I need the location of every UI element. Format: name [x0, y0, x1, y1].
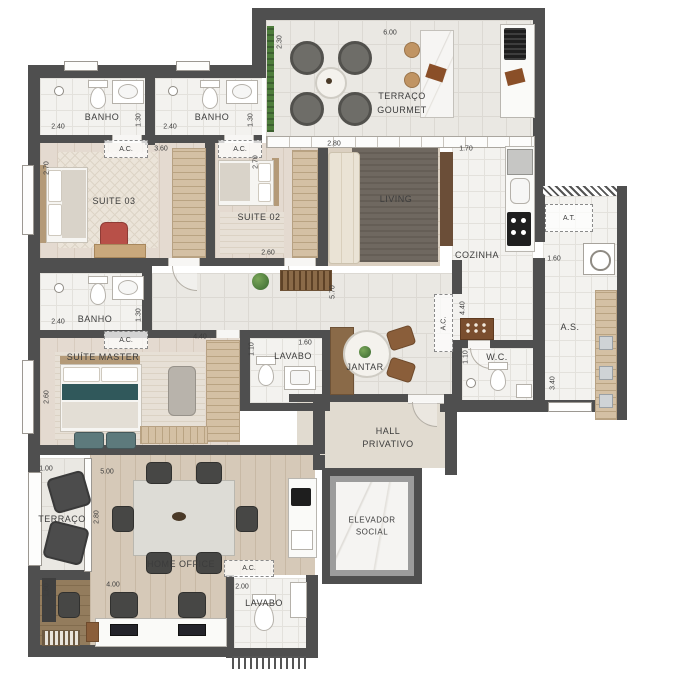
wall-suites-divider	[205, 143, 215, 258]
banho2-sink	[232, 84, 252, 99]
wall-lavabo1-top	[250, 330, 330, 338]
wall-wing-right	[617, 186, 627, 420]
dim-living-w: 2.80	[327, 141, 341, 148]
wc-toilet	[490, 369, 506, 391]
ac-box-shaft: A.C.	[434, 294, 453, 352]
dim-banho1-h: 1.30	[136, 113, 143, 127]
door-gap-suite03	[168, 258, 200, 266]
wc-basin	[516, 384, 532, 398]
island-stool-1	[404, 42, 420, 58]
suite02-label: SUITE 02	[237, 212, 280, 222]
wall-hall-right	[445, 394, 457, 475]
dim-suite03-w: 3.60	[154, 146, 168, 153]
ac-label-suite02: A.C.	[233, 146, 247, 153]
suite03-pillow-2	[48, 204, 62, 236]
cooktop-burner-2	[521, 218, 526, 223]
dim-lavabo1-w: 1.60	[298, 340, 312, 347]
suite-master-window	[22, 360, 34, 434]
master-blanket	[62, 402, 138, 428]
lavabo1-toilet	[258, 364, 274, 386]
home-office-label: HOME OFFICE	[147, 559, 215, 569]
ho-table-centerpiece	[172, 512, 186, 521]
hatch-lavabo2-bottom	[232, 656, 306, 669]
banho2-label: BANHO	[195, 112, 230, 122]
terraco-chair-1	[290, 41, 324, 75]
dim-homeoffice-h: 2.80	[94, 510, 101, 524]
wall-suite02-right	[318, 143, 328, 266]
dim-as-h: 3.40	[550, 376, 557, 390]
cooktop-burner-4	[521, 230, 526, 235]
living-label: LIVING	[380, 194, 413, 204]
banho3-toilet	[90, 283, 106, 305]
wall-lavabo2-right	[306, 575, 318, 648]
as-tub-1	[599, 336, 613, 350]
at-box: A.T.	[545, 204, 593, 232]
dim-as-w: 1.60	[547, 256, 561, 263]
dim-terraco-w: 6.00	[383, 30, 397, 37]
dim-banho1-w: 2.40	[51, 124, 65, 131]
ho-chair-1	[146, 462, 172, 484]
banho2-shower-icon	[168, 86, 178, 96]
master-teal-runner	[62, 384, 138, 400]
banho1-shower-icon	[54, 86, 64, 96]
ac-box-suite03: A.C.	[104, 140, 148, 158]
dim-wc-h: 1.10	[463, 350, 470, 364]
ac-label-master: A.C.	[119, 337, 133, 344]
grill-icon	[504, 28, 526, 60]
wall-banho3-top	[28, 265, 152, 273]
banho2-toilet	[202, 87, 218, 109]
ac-label-suite03: A.C.	[119, 146, 133, 153]
lavabo2-label: LAVABO	[245, 598, 283, 608]
lavabo1-sink	[290, 370, 310, 385]
floor-plan: A.C. A.C. A.C. A.C. A.C. A.T. BANHO BANH…	[0, 0, 677, 674]
ac-box-lavabo2: A.C.	[224, 560, 274, 577]
cooktop-burner-3	[511, 230, 516, 235]
wc-shower-icon	[466, 378, 476, 388]
wall-homeoffice-top	[28, 445, 320, 455]
wc-label: W.C.	[486, 352, 508, 362]
bookshelf-striped	[42, 630, 80, 646]
terraco-gourmet-label-2: GOURMET	[377, 105, 427, 115]
dim-banho3-w: 2.40	[51, 319, 65, 326]
desk-chair-2	[178, 592, 206, 618]
banho2-window	[176, 61, 210, 71]
suite02-blanket	[220, 163, 250, 201]
dim-suite02-h: 2.70	[253, 155, 260, 169]
lavabo2-sink-counter	[290, 582, 307, 618]
fridge-icon	[507, 149, 533, 175]
wall-terraco-bottom	[28, 570, 90, 580]
dim-suite03-h: 2.70	[44, 161, 51, 175]
island-stool-2	[404, 72, 420, 88]
suite03-window	[22, 165, 34, 235]
ac-box-master: A.C.	[104, 331, 148, 349]
ac-label-lavabo2: A.C.	[242, 565, 256, 572]
elevador-label-2: SOCIAL	[356, 528, 388, 537]
master-pillow-1	[63, 367, 100, 382]
door-gap-master	[216, 330, 240, 338]
master-chaise	[168, 366, 196, 416]
ac-label-shaft: A.C.	[440, 316, 447, 330]
terraco-chair-2	[338, 41, 372, 75]
suite02-wardrobe	[292, 150, 318, 258]
wall-kitchen-corridor	[452, 260, 462, 294]
dim-banho3-h: 1.30	[136, 308, 143, 322]
monitor-2	[178, 624, 206, 636]
dim-terraco2-w: 1.00	[39, 466, 53, 473]
suite-master-label: SUÍTE MASTER	[67, 352, 140, 362]
copa-sink	[291, 530, 313, 550]
banho3-sink	[118, 280, 138, 295]
hall-label-1: HALL	[376, 426, 401, 436]
as-tub-3	[599, 394, 613, 408]
monitor-1	[110, 624, 138, 636]
wall-lavabo2-left	[226, 575, 234, 657]
cozinha-label: COZINHA	[455, 250, 499, 260]
ho-chair-2	[196, 462, 222, 484]
wall-lavabo1-right	[322, 330, 330, 403]
wall-wc-left	[452, 340, 462, 402]
terraco-chair-3	[290, 92, 324, 126]
jantar-label: JANTAR	[346, 362, 383, 372]
dim-lavabo2-w: 2.00	[235, 584, 249, 591]
banho1-label: BANHO	[85, 112, 120, 122]
master-wardrobe-side	[206, 340, 240, 442]
dim-lavabo1-h: 1.10	[249, 342, 256, 356]
dim-corridor-h: 5.70	[330, 285, 337, 299]
lavabo1-label: LAVABO	[274, 351, 312, 361]
banho1-window	[64, 61, 98, 71]
as-label: A.S.	[560, 322, 579, 332]
suite03-wardrobe	[172, 148, 206, 258]
master-pillow-2	[101, 367, 138, 382]
terraco-gourmet-sliding-door	[266, 136, 535, 148]
desk-side-chair	[58, 592, 80, 618]
dim-homeoffice-w: 5.00	[100, 469, 114, 476]
terraco-gourmet-label-1: TERRAÇO	[378, 91, 426, 101]
banho3-label: BANHO	[78, 314, 113, 324]
dim-shaft-h: 4.40	[460, 301, 467, 315]
dim-desk-h: 1.60	[44, 583, 51, 597]
banho1-sink	[118, 84, 138, 99]
suite03-label: SUITE 03	[92, 196, 135, 206]
master-bench-1	[74, 432, 104, 449]
cooktop-icon	[507, 212, 531, 246]
dim-corridor-w: 2.60	[261, 250, 275, 257]
door-gap-suite02	[284, 258, 316, 266]
at-label: A.T.	[563, 215, 575, 222]
dim-desk-w: 4.00	[106, 582, 120, 589]
dim-cozinha-w: 1.70	[459, 146, 473, 153]
terraco-label: TERRAÇO	[38, 514, 86, 524]
wine-rack-bottles	[464, 322, 488, 334]
planter-strip	[267, 26, 274, 132]
elevator-cab	[336, 482, 408, 570]
dim-master-w: 4.40	[193, 334, 207, 341]
terraco-table-center	[326, 78, 332, 84]
dim-master-h: 2.60	[44, 390, 51, 404]
desk-chair-1	[110, 592, 138, 618]
copa-cooktop	[291, 488, 311, 506]
terraco-chair-4	[338, 92, 372, 126]
banho1-toilet	[90, 87, 106, 109]
wall-terraco-top	[252, 8, 545, 20]
kitchen-sink	[510, 178, 530, 204]
cooktop-burner-1	[511, 218, 516, 223]
suite03-blanket	[62, 170, 86, 238]
as-tub-2	[599, 366, 613, 380]
dim-banho2-h: 1.30	[248, 113, 255, 127]
tv-panel	[440, 152, 453, 246]
ho-chair-6	[236, 506, 258, 532]
wall-as-left	[533, 258, 545, 410]
as-window	[548, 402, 592, 412]
wall-hatch-at-top	[543, 186, 627, 196]
ho-chair-5	[112, 506, 134, 532]
banho3-shower-icon	[54, 283, 64, 293]
living-rug	[352, 148, 438, 262]
master-bench-2	[106, 432, 136, 449]
dim-banho2-w: 2.40	[163, 124, 177, 131]
wall-banho-divider	[145, 65, 155, 145]
suite03-red-chair	[100, 222, 128, 246]
master-wardrobe-bottom	[140, 426, 208, 444]
jantar-plant	[359, 346, 371, 358]
corridor-bar-cabinet	[280, 270, 332, 291]
washing-machine	[583, 243, 615, 275]
suite02-pillow-1	[258, 163, 271, 182]
hall-label-2: PRIVATIVO	[362, 439, 413, 449]
suite02-pillow-2	[258, 183, 271, 202]
living-sofa	[328, 152, 360, 264]
dim-terraco-h: 2.30	[277, 35, 284, 49]
suite03-desk	[94, 244, 146, 258]
corridor-plant	[252, 273, 269, 290]
elevador-label-1: ELEVADOR	[349, 516, 396, 525]
desk-side-table	[86, 622, 99, 642]
